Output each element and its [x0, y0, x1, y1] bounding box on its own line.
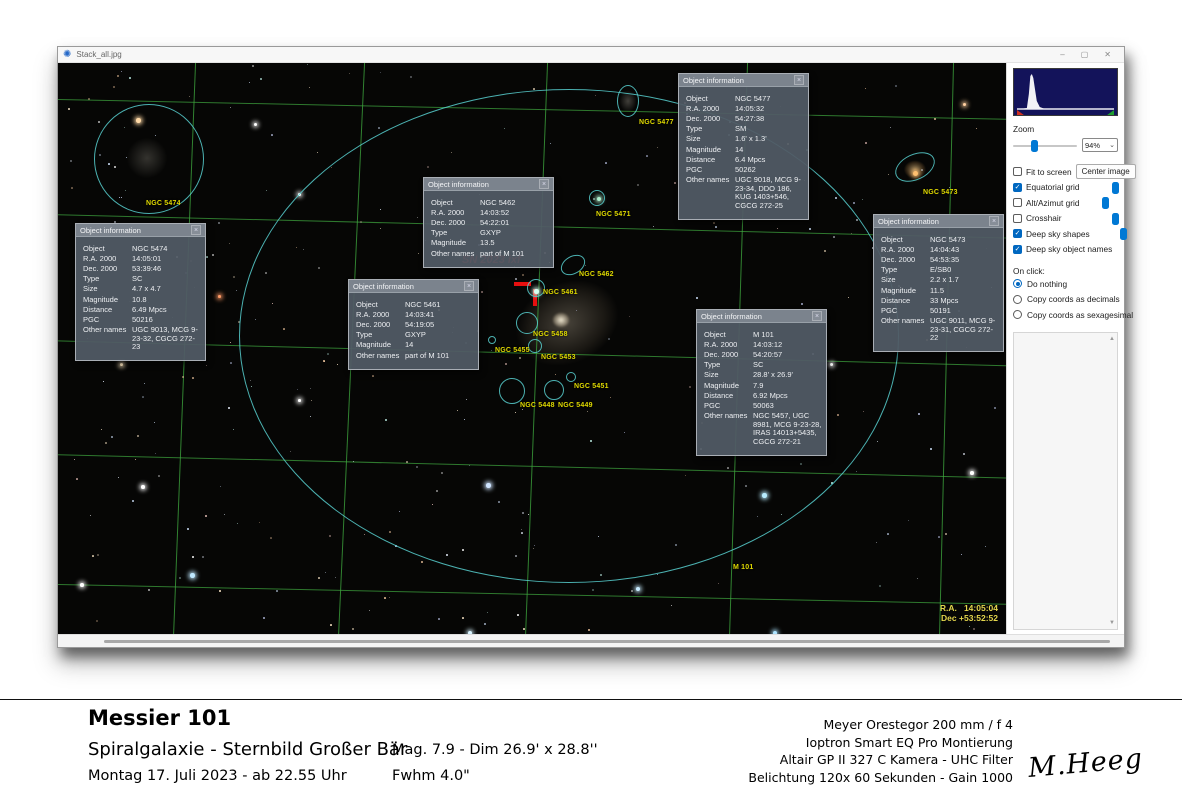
star: [994, 407, 996, 409]
popup-field-label: Other names: [356, 352, 405, 361]
popup-field-label: Type: [431, 229, 480, 238]
radio-copy-coords-as-decimals[interactable]: [1013, 295, 1022, 304]
popup-field-value: UGC 9013, MCG 9-23-32, CGCG 272-23: [132, 326, 201, 352]
page: ✺ Stack_all.jpg – ▢ ✕ SN 2023 ixf R.A. 1…: [0, 0, 1182, 804]
popup-field-value: E/SB0: [930, 266, 999, 275]
star: [158, 475, 160, 477]
star: [588, 629, 590, 631]
popup-field-label: PGC: [686, 166, 735, 175]
popup-field-label: Dec. 2000: [431, 219, 480, 228]
caption-magnitude: Mag. 7.9 - Dim 26.9' x 28.8'': [392, 742, 598, 758]
popup-row: Magnitude11.5: [881, 287, 999, 296]
popup-row: Dec. 200054:20:57: [704, 351, 822, 360]
popup-field-value: 14: [405, 341, 474, 350]
fit-to-screen-checkbox[interactable]: [1013, 167, 1022, 176]
popup-field-value: 50063: [753, 402, 822, 411]
star: [137, 435, 139, 437]
star: [148, 589, 150, 591]
zoom-slider[interactable]: [1013, 139, 1077, 152]
toggle-row: ✓Deep sky object names: [1013, 242, 1118, 258]
deep-sky-shape[interactable]: [566, 372, 576, 382]
minimize-icon[interactable]: –: [1060, 50, 1064, 59]
star: [384, 597, 386, 599]
toggle-label: Alt/Azimut grid: [1026, 198, 1079, 208]
radio-row: Copy coords as decimals: [1013, 292, 1118, 308]
zoom-label: Zoom: [1013, 124, 1118, 134]
star: [228, 407, 230, 409]
popup-field-value: SC: [753, 361, 822, 370]
deep-sky-shape[interactable]: [589, 190, 605, 206]
star: [96, 620, 98, 622]
popup-row: PGC50262: [686, 166, 804, 175]
center-image-button[interactable]: Center image: [1076, 164, 1136, 179]
maximize-icon[interactable]: ▢: [1081, 50, 1089, 59]
equipment-line: Belichtung 120x 60 Sekunden - Gain 1000: [748, 769, 1013, 787]
star: [98, 121, 100, 123]
star: [349, 73, 350, 74]
popup-titlebar[interactable]: Object information×: [349, 280, 478, 293]
popup-field-label: Magnitude: [356, 341, 405, 350]
scroll-down-icon[interactable]: ▼: [1109, 620, 1115, 626]
star: [179, 577, 181, 579]
close-icon[interactable]: ×: [989, 216, 999, 226]
star: [117, 75, 119, 77]
popup-row: Dec. 200054:53:35: [881, 256, 999, 265]
popup-row: Magnitude10.8: [83, 296, 201, 305]
popup-title-text: Object information: [428, 180, 489, 189]
popup-row: Dec. 200054:19:05: [356, 321, 474, 330]
popup-field-label: Type: [686, 125, 735, 134]
star: [182, 376, 184, 378]
star: [917, 578, 918, 579]
popup-row: Other namesUGC 9013, MCG 9-23-32, CGCG 2…: [83, 326, 201, 352]
popup-field-value: 6.49 Mpcs: [132, 306, 201, 315]
popup-field-label: R.A. 2000: [686, 105, 735, 114]
popup-field-value: 14:03:52: [480, 209, 549, 218]
star: [266, 190, 267, 191]
star: [212, 254, 214, 256]
slider-thumb[interactable]: [1102, 197, 1109, 209]
popup-field-label: Dec. 2000: [83, 265, 132, 274]
star: [259, 522, 260, 523]
star: [233, 429, 234, 430]
overlay-slider[interactable]: [1072, 212, 1118, 225]
checkbox-deep-sky-shapes[interactable]: ✓: [1013, 229, 1022, 238]
popup-field-label: Other names: [704, 412, 753, 446]
popup-field-label: Object: [881, 236, 930, 245]
popup-field-label: Distance: [686, 156, 735, 165]
star: [908, 520, 909, 521]
star: [154, 422, 155, 423]
star: [105, 442, 107, 444]
toggle-label: Crosshair: [1026, 213, 1062, 223]
popup-body: ObjectNGC 5474R.A. 200014:05:01Dec. 2000…: [76, 237, 205, 360]
window-controls: – ▢ ✕: [1060, 50, 1119, 59]
star: [309, 87, 310, 88]
popup-row: ObjectNGC 5473: [881, 236, 999, 245]
object-label: NGC 5451: [574, 383, 609, 390]
caption-title: Messier 101: [88, 706, 231, 730]
object-info-popup[interactable]: Object information×ObjectNGC 5462R.A. 20…: [423, 177, 554, 268]
popup-field-value: 11.5: [930, 287, 999, 296]
results-panel[interactable]: ▲ ▼: [1013, 332, 1118, 631]
scroll-up-icon[interactable]: ▲: [1109, 336, 1115, 342]
popup-field-value: 54:53:35: [930, 256, 999, 265]
object-label: NGC 5474: [146, 200, 181, 207]
star: [888, 174, 889, 175]
star: [325, 572, 326, 573]
star: [895, 85, 897, 87]
star: [671, 605, 672, 606]
zoom-select[interactable]: 94% ⌄: [1082, 138, 1118, 152]
star: [206, 256, 208, 258]
horizontal-scrollbar-thumb[interactable]: [104, 640, 1110, 643]
overlay-slider[interactable]: [1094, 227, 1140, 240]
star: [230, 342, 231, 343]
popup-title-text: Object information: [683, 76, 744, 85]
popup-field-value: NGC 5457, UGC 8981, MCG 9-23-28, IRAS 14…: [753, 412, 822, 446]
popup-row: Size28.8' x 26.9': [704, 371, 822, 380]
popup-field-value: 33 Mpcs: [930, 297, 999, 306]
popup-body: ObjectM 101R.A. 200014:03:12Dec. 200054:…: [697, 323, 826, 455]
popup-titlebar[interactable]: Object information×: [424, 178, 553, 191]
close-icon[interactable]: ×: [539, 179, 549, 189]
radio-row: Do nothing: [1013, 276, 1118, 292]
star: [206, 365, 207, 366]
close-icon[interactable]: ✕: [1104, 50, 1111, 59]
popup-row: TypeSC: [83, 275, 201, 284]
checkbox-equatorial-grid[interactable]: ✓: [1013, 183, 1022, 192]
deep-sky-shape[interactable]: [528, 339, 542, 353]
popup-field-value: M 101: [753, 331, 822, 340]
popup-title-text: Object information: [80, 226, 141, 235]
popup-field-label: Type: [881, 266, 930, 275]
popup-field-value: 50262: [735, 166, 804, 175]
popup-field-value: NGC 5462: [480, 199, 549, 208]
popup-titlebar[interactable]: Object information×: [76, 224, 205, 237]
star: [887, 533, 889, 535]
star: [68, 108, 70, 110]
popup-body: ObjectNGC 5462R.A. 200014:03:52Dec. 2000…: [424, 191, 553, 267]
popup-field-value: 13.5: [480, 239, 549, 248]
star: [318, 577, 320, 579]
popup-field-value: 4.7 x 4.7: [132, 285, 201, 294]
popup-field-value: 54:27:38: [735, 115, 804, 124]
popup-field-value: UGC 9011, MCG 9-23-31, CGCG 272-22: [930, 317, 999, 343]
radio-copy-coords-as-sexagesimal[interactable]: [1013, 310, 1022, 319]
star: [101, 429, 102, 430]
popup-row: Magnitude14: [356, 341, 474, 350]
star: [487, 612, 488, 613]
star: [230, 362, 232, 364]
star: [945, 533, 947, 535]
toggle-row: Alt/Azimut grid: [1013, 195, 1118, 211]
radio-do-nothing[interactable]: [1013, 279, 1022, 288]
close-icon[interactable]: ×: [464, 281, 474, 291]
star: [517, 614, 519, 616]
popup-title-text: Object information: [353, 282, 414, 291]
popup-field-label: Magnitude: [686, 146, 735, 155]
popup-body: ObjectNGC 5477R.A. 200014:05:32Dec. 2000…: [679, 87, 808, 219]
object-info-popup[interactable]: Object information×ObjectNGC 5474R.A. 20…: [75, 223, 206, 361]
dec-value: Dec +53:52:52: [941, 613, 998, 623]
star: [230, 107, 231, 108]
checkbox-alt-azimut-grid[interactable]: [1013, 198, 1022, 207]
popup-field-label: Dec. 2000: [881, 256, 930, 265]
popup-field-value: 14:04:43: [930, 246, 999, 255]
close-icon[interactable]: ×: [812, 311, 822, 321]
popup-field-value: NGC 5473: [930, 236, 999, 245]
popup-row: Dec. 200054:22:01: [431, 219, 549, 228]
popup-field-label: Magnitude: [431, 239, 480, 248]
popup-field-label: Dec. 2000: [356, 321, 405, 330]
app-icon: ✺: [63, 50, 71, 60]
popup-titlebar[interactable]: Object information×: [697, 310, 826, 323]
popup-field-label: Object: [704, 331, 753, 340]
popup-field-value: SC: [132, 275, 201, 284]
popup-body: ObjectNGC 5461R.A. 200014:03:41Dec. 2000…: [349, 293, 478, 369]
star: [973, 628, 975, 630]
sky-image[interactable]: SN 2023 ixf R.A. 14:05:04Dec +53:52:52 N…: [58, 63, 1006, 634]
popup-field-value: 10.8: [132, 296, 201, 305]
star: [389, 597, 390, 598]
star: [220, 486, 221, 487]
star: [263, 617, 265, 619]
popup-field-value: GXYP: [480, 229, 549, 238]
toggle-row: ✓Equatorial grid: [1013, 180, 1118, 196]
star: [484, 623, 486, 625]
bright-star: [963, 103, 966, 106]
close-icon[interactable]: ×: [794, 75, 804, 85]
popup-field-label: R.A. 2000: [83, 255, 132, 264]
popup-row: Other namesNGC 5457, UGC 8981, MCG 9-23-…: [704, 412, 822, 446]
star: [856, 471, 857, 472]
object-info-popup[interactable]: Object information×ObjectNGC 5461R.A. 20…: [348, 279, 479, 370]
popup-field-label: Magnitude: [881, 287, 930, 296]
caption-fwhm: Fwhm 4.0": [392, 768, 470, 784]
popup-field-value: 53:39:46: [132, 265, 201, 274]
popup-row: ObjectNGC 5477: [686, 95, 804, 104]
deep-sky-shape[interactable]: [499, 378, 525, 404]
radio-label: Do nothing: [1027, 279, 1067, 289]
deep-sky-shape[interactable]: [617, 85, 639, 117]
popup-field-label: Object: [431, 199, 480, 208]
star: [111, 436, 113, 438]
bright-star: [218, 295, 221, 298]
star: [462, 617, 464, 619]
star: [249, 82, 250, 83]
star: [862, 199, 863, 200]
star: [877, 441, 878, 442]
popup-field-label: Other names: [431, 250, 480, 259]
toggle-label: Deep sky shapes: [1026, 229, 1090, 239]
popup-field-label: Type: [704, 361, 753, 370]
star: [192, 556, 194, 558]
bright-star: [970, 471, 974, 475]
popup-field-value: 14:05:01: [132, 255, 201, 264]
popup-field-label: Size: [881, 276, 930, 285]
popup-field-label: Type: [356, 331, 405, 340]
toggle-label: Equatorial grid: [1026, 182, 1080, 192]
popup-field-label: Distance: [704, 392, 753, 401]
star: [329, 535, 331, 537]
object-label: NGC 5471: [596, 211, 631, 218]
popup-row: Other namesUGC 9011, MCG 9-23-31, CGCG 2…: [881, 317, 999, 343]
popup-body: ObjectNGC 5473R.A. 200014:04:43Dec. 2000…: [874, 228, 1003, 351]
checkbox-crosshair[interactable]: [1013, 214, 1022, 223]
bright-star: [190, 573, 195, 578]
popup-row: Dec. 200054:27:38: [686, 115, 804, 124]
star: [71, 187, 73, 189]
star: [74, 459, 75, 460]
popup-row: TypeSC: [704, 361, 822, 370]
sidebar: Zoom 94% ⌄ Fit to screen Center image ✓E…: [1006, 63, 1124, 634]
star: [224, 514, 225, 515]
popup-row: PGC50216: [83, 316, 201, 325]
object-label: NGC 5461: [543, 289, 578, 296]
popup-title-text: Object information: [701, 312, 762, 321]
window-title: Stack_all.jpg: [76, 50, 121, 59]
object-info-popup[interactable]: Object information×ObjectNGC 5473R.A. 20…: [873, 214, 1004, 352]
object-label: M 101: [733, 564, 753, 571]
popup-field-value: NGC 5474: [132, 245, 201, 254]
popup-field-label: Dec. 2000: [704, 351, 753, 360]
popup-row: Distance6.92 Mpcs: [704, 392, 822, 401]
object-info-popup[interactable]: Object information×ObjectNGC 5477R.A. 20…: [678, 73, 809, 220]
star: [142, 396, 144, 398]
star: [335, 577, 336, 578]
popup-row: Other namespart of M 101: [356, 352, 474, 361]
star: [92, 555, 94, 557]
star: [118, 477, 119, 478]
popup-field-label: PGC: [83, 316, 132, 325]
popup-row: ObjectNGC 5461: [356, 301, 474, 310]
star: [963, 453, 965, 455]
star: [205, 515, 207, 517]
popup-field-label: Object: [356, 301, 405, 310]
popup-field-label: Magnitude: [83, 296, 132, 305]
popup-field-value: 14: [735, 146, 804, 155]
window-titlebar[interactable]: ✺ Stack_all.jpg – ▢ ✕: [58, 47, 1124, 63]
equipment-line: Meyer Orestegor 200 mm / f 4: [748, 716, 1013, 734]
popup-titlebar[interactable]: Object information×: [874, 215, 1003, 228]
star: [189, 96, 190, 97]
popup-field-label: Other names: [83, 326, 132, 352]
histogram[interactable]: [1013, 68, 1118, 116]
caption-divider: [0, 699, 1182, 700]
popup-field-label: Other names: [686, 176, 735, 210]
popup-field-label: PGC: [881, 307, 930, 316]
deep-sky-shape[interactable]: [890, 146, 939, 187]
popup-field-label: R.A. 2000: [431, 209, 480, 218]
popup-field-value: 54:19:05: [405, 321, 474, 330]
slider-thumb[interactable]: [1112, 182, 1119, 194]
ra-dec-readout: R.A. 14:05:04Dec +53:52:52: [940, 603, 998, 623]
popup-field-value: 6.92 Mpcs: [753, 392, 822, 401]
object-info-popup[interactable]: Object information×ObjectM 101R.A. 20001…: [696, 309, 827, 456]
object-label: NGC 5448: [520, 402, 555, 409]
popup-row: Distance33 Mpcs: [881, 297, 999, 306]
popup-field-value: UGC 9018, MCG 9-23-34, DDO 186, KUG 1403…: [735, 176, 804, 210]
popup-row: Dec. 200053:39:46: [83, 265, 201, 274]
star: [144, 383, 145, 384]
star: [260, 78, 262, 80]
slider-thumb[interactable]: [1112, 213, 1119, 225]
popup-field-value: 50216: [132, 316, 201, 325]
popup-field-value: 14:05:32: [735, 105, 804, 114]
star: [121, 71, 122, 72]
star: [930, 448, 932, 450]
star: [934, 118, 936, 120]
star: [918, 413, 920, 415]
horizontal-scrollbar[interactable]: [58, 634, 1124, 647]
caption-date: Montag 17. Juli 2023 - ab 22.55 Uhr: [88, 768, 347, 784]
star: [70, 160, 72, 162]
popup-field-value: 14:03:41: [405, 311, 474, 320]
overlay-slider[interactable]: [1084, 181, 1130, 194]
slider-thumb[interactable]: [1120, 228, 1127, 240]
popup-field-value: 28.8' x 26.9': [753, 371, 822, 380]
popup-field-label: Size: [83, 285, 132, 294]
popup-field-label: Size: [686, 135, 735, 144]
toggle-label: Deep sky object names: [1026, 244, 1112, 254]
star: [378, 127, 380, 129]
popup-field-label: Type: [83, 275, 132, 284]
popup-row: R.A. 200014:05:01: [83, 255, 201, 264]
popup-row: TypeSM: [686, 125, 804, 134]
close-icon[interactable]: ×: [191, 225, 201, 235]
popup-row: ObjectNGC 5462: [431, 199, 549, 208]
popup-field-label: Object: [686, 95, 735, 104]
grid-line: [58, 583, 1006, 606]
deep-sky-shape[interactable]: [544, 380, 564, 400]
caption-equipment: Meyer Orestegor 200 mm / f 4Ioptron Smar…: [748, 716, 1013, 786]
popup-titlebar[interactable]: Object information×: [679, 74, 808, 87]
star: [129, 77, 131, 79]
star: [233, 276, 235, 278]
star: [236, 290, 237, 291]
popup-row: TypeGXYP: [431, 229, 549, 238]
star: [97, 554, 99, 556]
overlay-slider[interactable]: [1083, 196, 1129, 209]
star: [657, 574, 658, 575]
fit-to-screen-label: Fit to screen: [1026, 167, 1072, 177]
bright-star: [120, 363, 123, 366]
popup-row: Distance6.4 Mpcs: [686, 156, 804, 165]
star: [187, 528, 189, 530]
caption-signature: M.Heeg: [1027, 743, 1144, 784]
popup-field-label: Object: [83, 245, 132, 254]
popup-field-value: 54:20:57: [753, 351, 822, 360]
on-click-group: On click: Do nothingCopy coords as decim…: [1013, 266, 1118, 323]
popup-row: Magnitude7.9: [704, 382, 822, 391]
star: [76, 478, 78, 480]
toggle-row: Crosshair: [1013, 211, 1118, 227]
radio-label: Copy coords as sexagesimal: [1027, 310, 1133, 320]
popup-field-label: Other names: [881, 317, 930, 343]
popup-field-value: part of M 101: [480, 250, 549, 259]
object-label: NGC 5473: [923, 189, 958, 196]
deep-sky-shape[interactable]: [94, 104, 204, 214]
star: [879, 585, 881, 587]
star: [976, 128, 977, 129]
deep-sky-shape[interactable]: [488, 336, 496, 344]
star: [237, 523, 238, 524]
popup-row: ObjectNGC 5474: [83, 245, 201, 254]
popup-field-label: R.A. 2000: [356, 311, 405, 320]
checkbox-deep-sky-object-names[interactable]: ✓: [1013, 245, 1022, 254]
bright-star: [80, 583, 84, 587]
